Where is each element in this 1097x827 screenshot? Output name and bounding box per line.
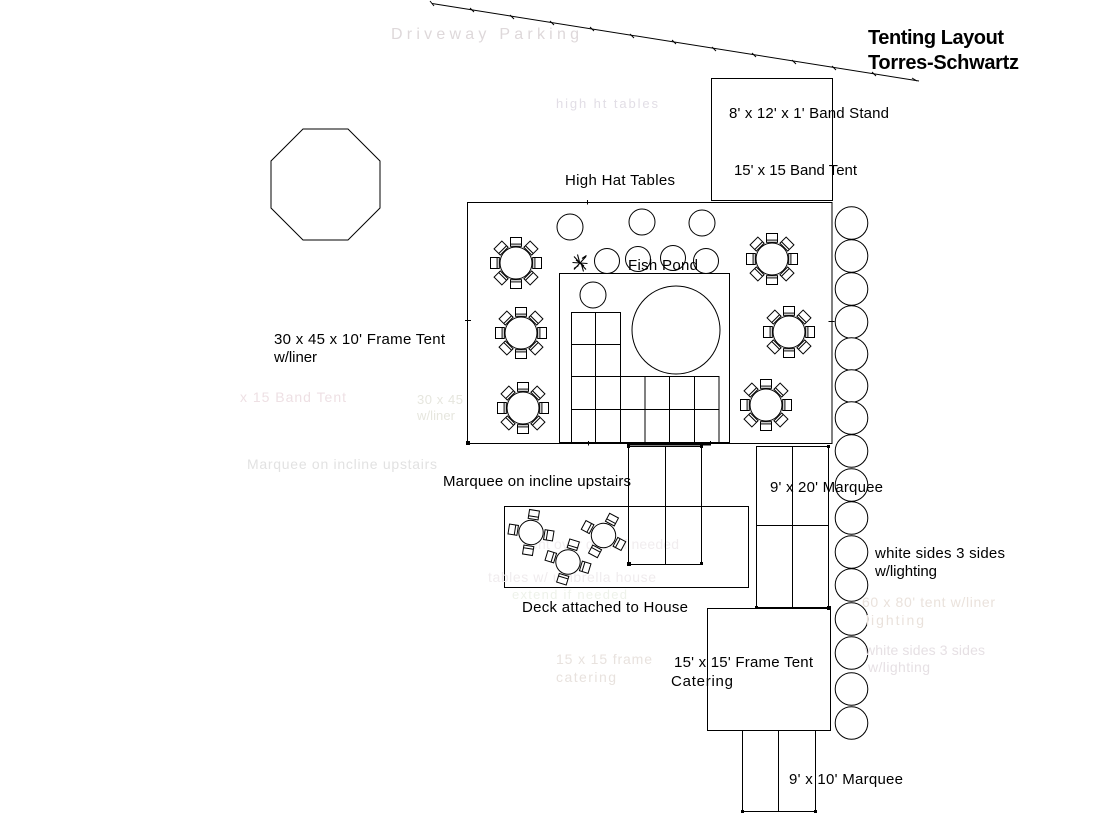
svg-text:white sides 3 sides: white sides 3 sides xyxy=(874,545,1005,562)
svg-text:w/lighting: w/lighting xyxy=(874,563,937,580)
svg-text:w/lighting: w/lighting xyxy=(867,659,930,675)
svg-text:Torres-Schwartz: Torres-Schwartz xyxy=(868,52,1019,74)
svg-text:9' x 10' Marquee: 9' x 10' Marquee xyxy=(789,771,903,788)
svg-text:60 x 80' tent w/liner: 60 x 80' tent w/liner xyxy=(862,594,995,610)
svg-text:Fish Pond: Fish Pond xyxy=(628,257,698,274)
svg-text:High Hat Tables: High Hat Tables xyxy=(565,172,675,189)
svg-text:Marquee on incline upstairs: Marquee on incline upstairs xyxy=(443,473,631,490)
svg-text:15' x 15' Frame Tent: 15' x 15' Frame Tent xyxy=(674,654,814,671)
svg-text:w/liner: w/liner xyxy=(273,349,317,366)
svg-text:15' x 15 Band Tent: 15' x 15 Band Tent xyxy=(734,162,858,179)
svg-text:w/liner: w/liner xyxy=(416,408,456,423)
svg-text:Tenting Layout: Tenting Layout xyxy=(868,27,1004,49)
svg-text:Driveway Parking: Driveway Parking xyxy=(391,26,579,43)
svg-text:30 x 45: 30 x 45 xyxy=(417,392,463,407)
svg-text:15 x 15 frame: 15 x 15 frame xyxy=(556,651,652,667)
svg-text:x 15 Band Tent: x 15 Band Tent xyxy=(240,389,346,405)
svg-text:Marquee on incline upstairs: Marquee on incline upstairs xyxy=(247,456,437,472)
svg-text:Catering: Catering xyxy=(671,673,733,690)
svg-text:white sides 3 sides: white sides 3 sides xyxy=(864,642,985,658)
svg-text:30 x 45 x 10' Frame Tent: 30 x 45 x 10' Frame Tent xyxy=(274,331,446,348)
svg-text:9' x 20' Marquee: 9' x 20' Marquee xyxy=(770,479,883,496)
svg-text:8' x 12' x 1' Band Stand: 8' x 12' x 1' Band Stand xyxy=(729,105,889,122)
svg-text:extend if needed: extend if needed xyxy=(512,587,627,602)
